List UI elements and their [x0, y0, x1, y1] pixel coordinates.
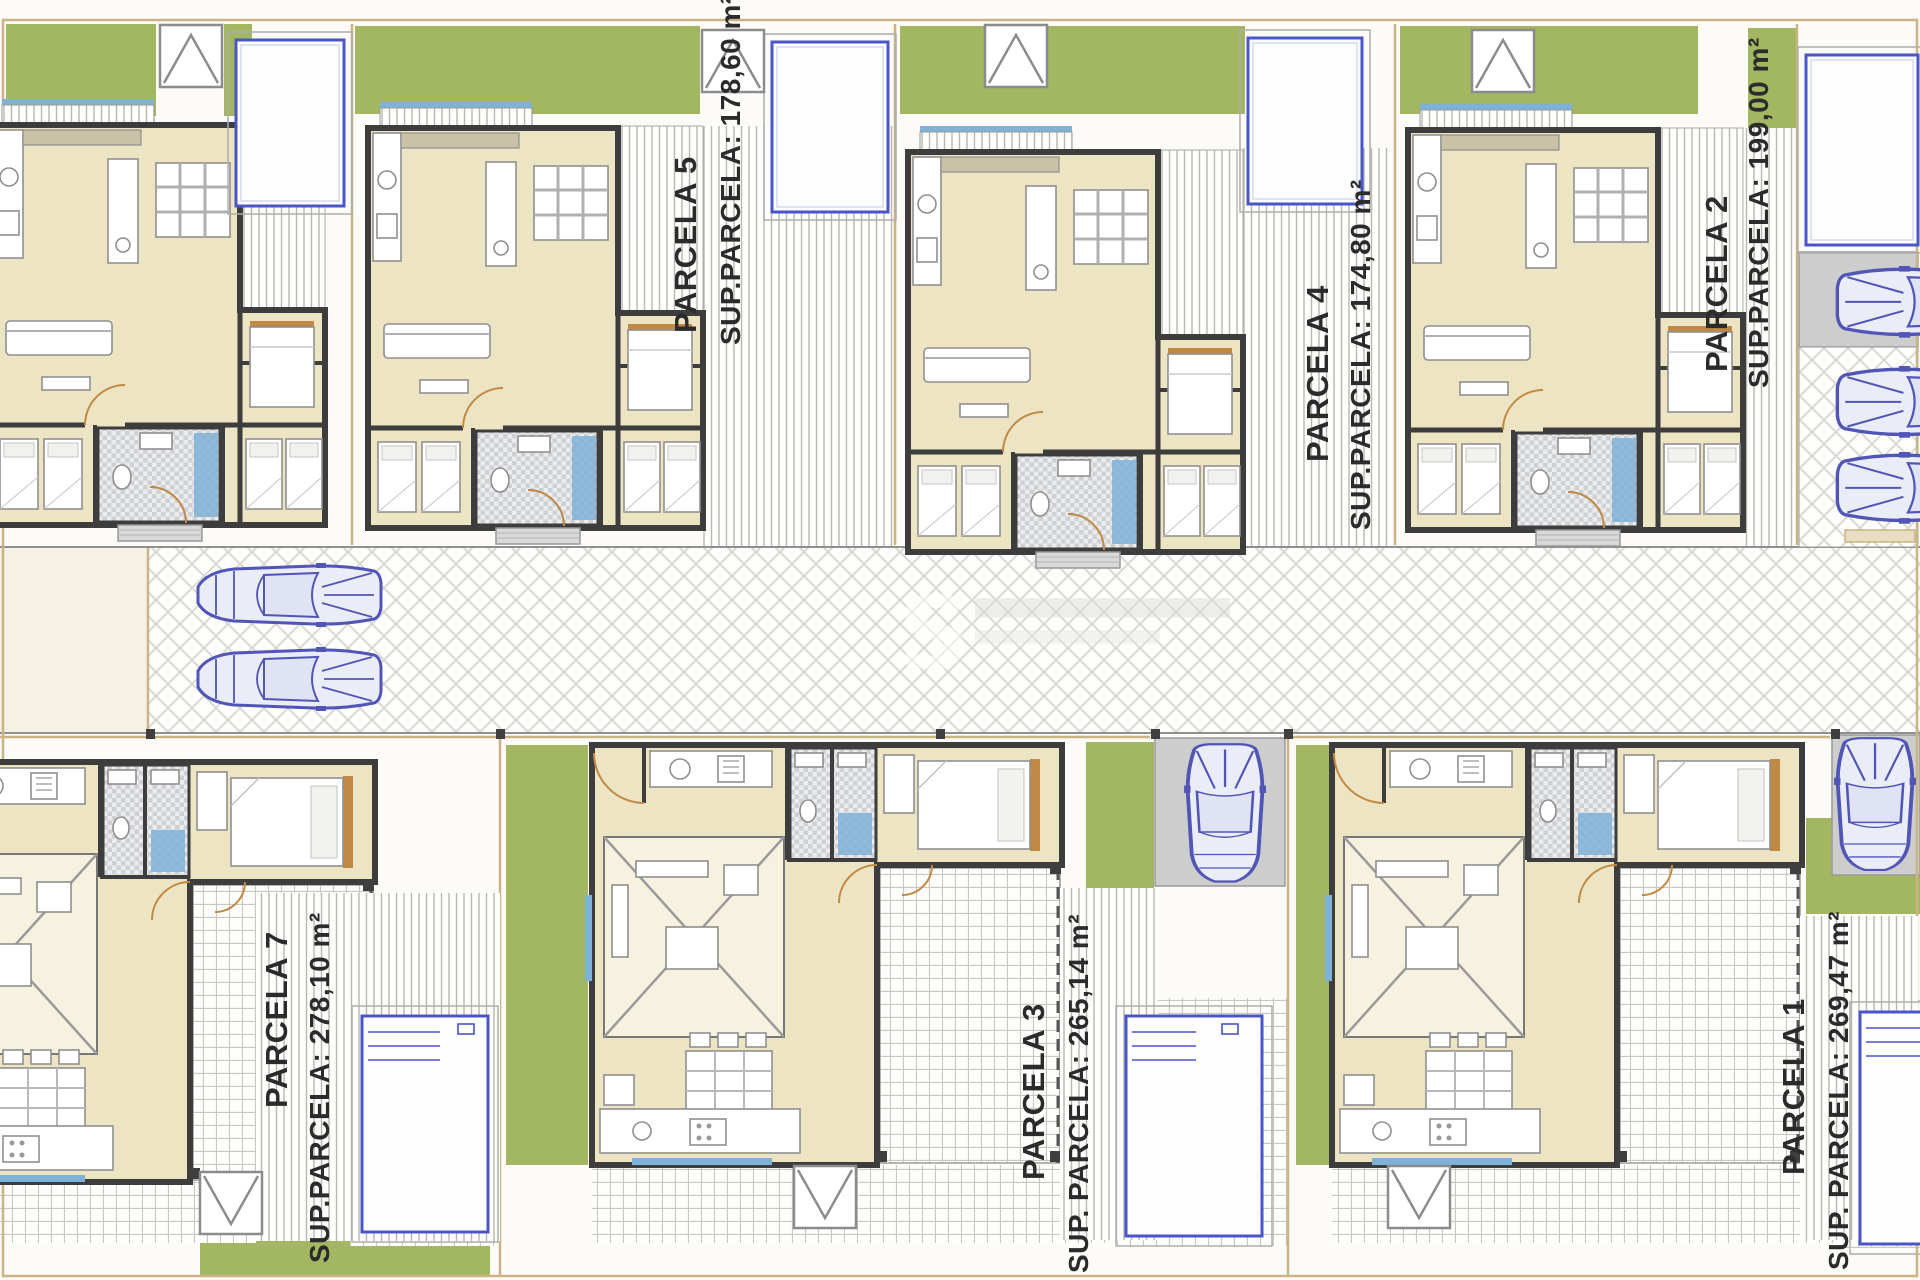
- pool-parcela-5: [764, 34, 896, 220]
- villa-parcela-4: [908, 126, 1243, 568]
- parcela-1-area: SUP. PARCELA: 269,47 m²: [1823, 911, 1854, 1270]
- parcela-3-name: PARCELA 3: [1016, 1003, 1051, 1180]
- plot-marker-icon: [1472, 30, 1534, 92]
- watermark-letter: S: [898, 575, 970, 692]
- plot-marker-icon: [1388, 1166, 1450, 1228]
- pool-parcela-1: [1850, 1002, 1920, 1254]
- car-top-view-icon: [1837, 266, 1920, 338]
- pool-parcela-2: [1798, 47, 1920, 253]
- site-plan-page: PARCELA 5 SUP.PARCELA: 178,60 m² PARCELA…: [0, 0, 1920, 1280]
- watermark-text-bar: [975, 630, 1160, 644]
- site-plan-drawing: PARCELA 5 SUP.PARCELA: 178,60 m² PARCELA…: [0, 0, 1920, 1280]
- parcela-4-area: SUP.PARCELA: 174,80 m²: [1345, 179, 1376, 530]
- parcela-7-name: PARCELA 7: [259, 931, 294, 1108]
- plot-marker-icon: [200, 1172, 262, 1234]
- parcela-7-area: SUP.PARCELA: 278,10 m²: [304, 912, 335, 1263]
- car-top-view-icon: [1837, 366, 1920, 438]
- parcela-5-name: PARCELA 5: [668, 156, 703, 333]
- villa-parcela-3: [585, 745, 1062, 1165]
- parcela-5-area: SUP.PARCELA: 178,60 m²: [715, 0, 746, 345]
- plot-marker-icon: [794, 1166, 856, 1228]
- villa-parcela-5: [368, 102, 703, 544]
- pool-parcela-7: [352, 1006, 498, 1242]
- parcela-2-area: SUP.PARCELA: 199,00 m²: [1743, 37, 1774, 388]
- pool-top-1: [228, 32, 352, 214]
- parcela-2-name: PARCELA 2: [1699, 195, 1734, 372]
- car-top-view-icon: [198, 563, 381, 627]
- villa-parcela-2: [1408, 104, 1743, 546]
- watermark-text-bar: [975, 598, 1230, 618]
- car-top-view-icon: [1184, 744, 1266, 881]
- parcela-4-name: PARCELA 4: [1300, 285, 1335, 462]
- parcela-1-name: PARCELA 1: [1776, 998, 1811, 1175]
- villa-parcela-1: [1325, 745, 1802, 1165]
- parcela-3-area: SUP. PARCELA: 265,14 m²: [1063, 914, 1094, 1273]
- car-top-view-icon: [198, 647, 381, 711]
- car-top-view-icon: [1834, 738, 1916, 870]
- plot-marker-icon: [160, 25, 222, 87]
- plot-marker-icon: [985, 25, 1047, 87]
- car-top-view-icon: [1837, 452, 1920, 524]
- pool-parcela-3: [1116, 1006, 1272, 1246]
